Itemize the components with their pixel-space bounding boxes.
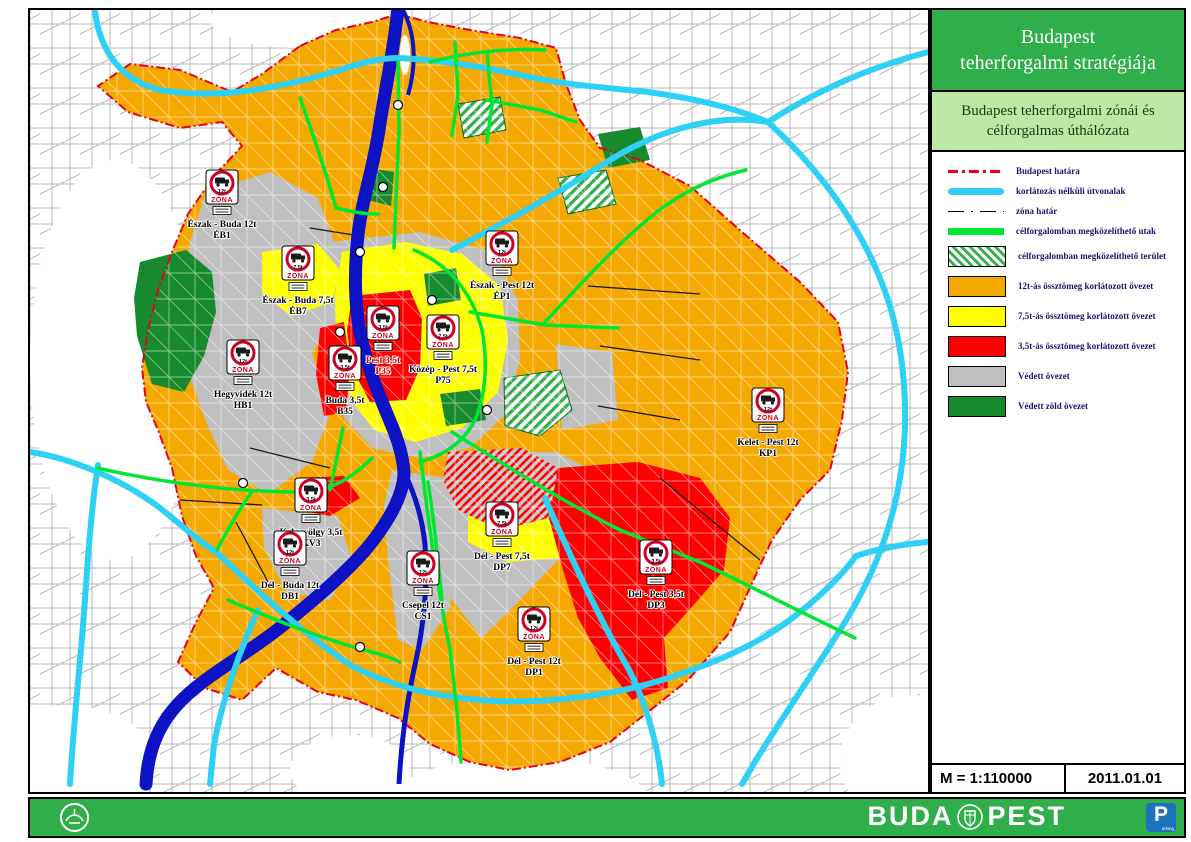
parking-sub: arking <box>1162 826 1174 831</box>
legend-item: Budapest határa <box>948 166 1174 177</box>
legend-swatch <box>948 170 1004 173</box>
legend-item: 7,5t-ás össztömeg korlátozott övezet <box>948 306 1174 327</box>
legend-item: 3,5t-ás össztömeg korlátozott övezet <box>948 336 1174 357</box>
legend-label: célforgalomban megközelíthető terület <box>1018 251 1166 262</box>
footer-bar: BUDA PEST P arking <box>28 797 1186 838</box>
legend: Budapest határa korlátozás nélküli útvon… <box>932 152 1184 763</box>
legend-item: 12t-ás össztömeg korlátozott övezet <box>948 276 1174 297</box>
legend-label: célforgalomban megközelíthető utak <box>1016 226 1156 237</box>
legend-label: Budapest határa <box>1016 166 1080 177</box>
legend-swatch <box>948 276 1006 297</box>
scale-bar: M = 1:110000 2011.01.01 <box>932 763 1184 792</box>
side-panel: Budapest teherforgalmi stratégiája Budap… <box>930 8 1186 794</box>
legend-item: Védett övezet <box>948 366 1174 387</box>
legend-swatch <box>948 188 1004 195</box>
legend-label: 3,5t-ás össztömeg korlátozott övezet <box>1018 341 1155 352</box>
map-drawing <box>30 10 928 792</box>
legend-swatch <box>948 211 1004 213</box>
legend-label: korlátozás nélküli útvonalak <box>1016 186 1126 197</box>
legend-item: Védett zöld övezet <box>948 396 1174 417</box>
legend-label: 7,5t-ás össztömeg korlátozott övezet <box>1018 311 1155 322</box>
legend-swatch <box>948 366 1006 387</box>
legend-item: célforgalomban megközelíthető terület <box>948 246 1174 267</box>
legend-item: célforgalomban megközelíthető utak <box>948 226 1174 237</box>
legend-item: korlátozás nélküli útvonalak <box>948 186 1174 197</box>
map-scale: M = 1:110000 <box>932 765 1066 792</box>
legend-label: zóna határ <box>1016 206 1057 217</box>
brand-buda: BUDA <box>867 801 953 832</box>
map-title: Budapest teherforgalmi stratégiája <box>932 10 1184 92</box>
budapest-coat-of-arms-icon <box>955 802 985 832</box>
legend-swatch <box>948 246 1006 267</box>
map-sheet: 12t ZÓNA Észak - Buda 12t ÉB1 7,5t ZÓNA <box>0 0 1191 842</box>
legend-swatch <box>948 396 1006 417</box>
legend-item: zóna határ <box>948 206 1174 217</box>
legend-swatch <box>948 228 1004 235</box>
map-date: 2011.01.01 <box>1066 765 1184 792</box>
budapest-brand: BUDA PEST <box>867 801 1066 832</box>
map-subtitle: Budapest teherforgalmi zónái és célforga… <box>932 92 1184 152</box>
footer-emblem-icon <box>60 803 89 832</box>
legend-swatch <box>948 306 1006 327</box>
map-canvas <box>28 8 930 794</box>
parking-p: P <box>1154 803 1168 826</box>
legend-label: Védett zöld övezet <box>1018 401 1088 412</box>
brand-pest: PEST <box>987 801 1066 832</box>
parking-logo: P arking <box>1146 803 1176 832</box>
legend-label: 12t-ás össztömeg korlátozott övezet <box>1018 281 1153 292</box>
legend-swatch <box>948 336 1006 357</box>
legend-label: Védett övezet <box>1018 371 1070 382</box>
